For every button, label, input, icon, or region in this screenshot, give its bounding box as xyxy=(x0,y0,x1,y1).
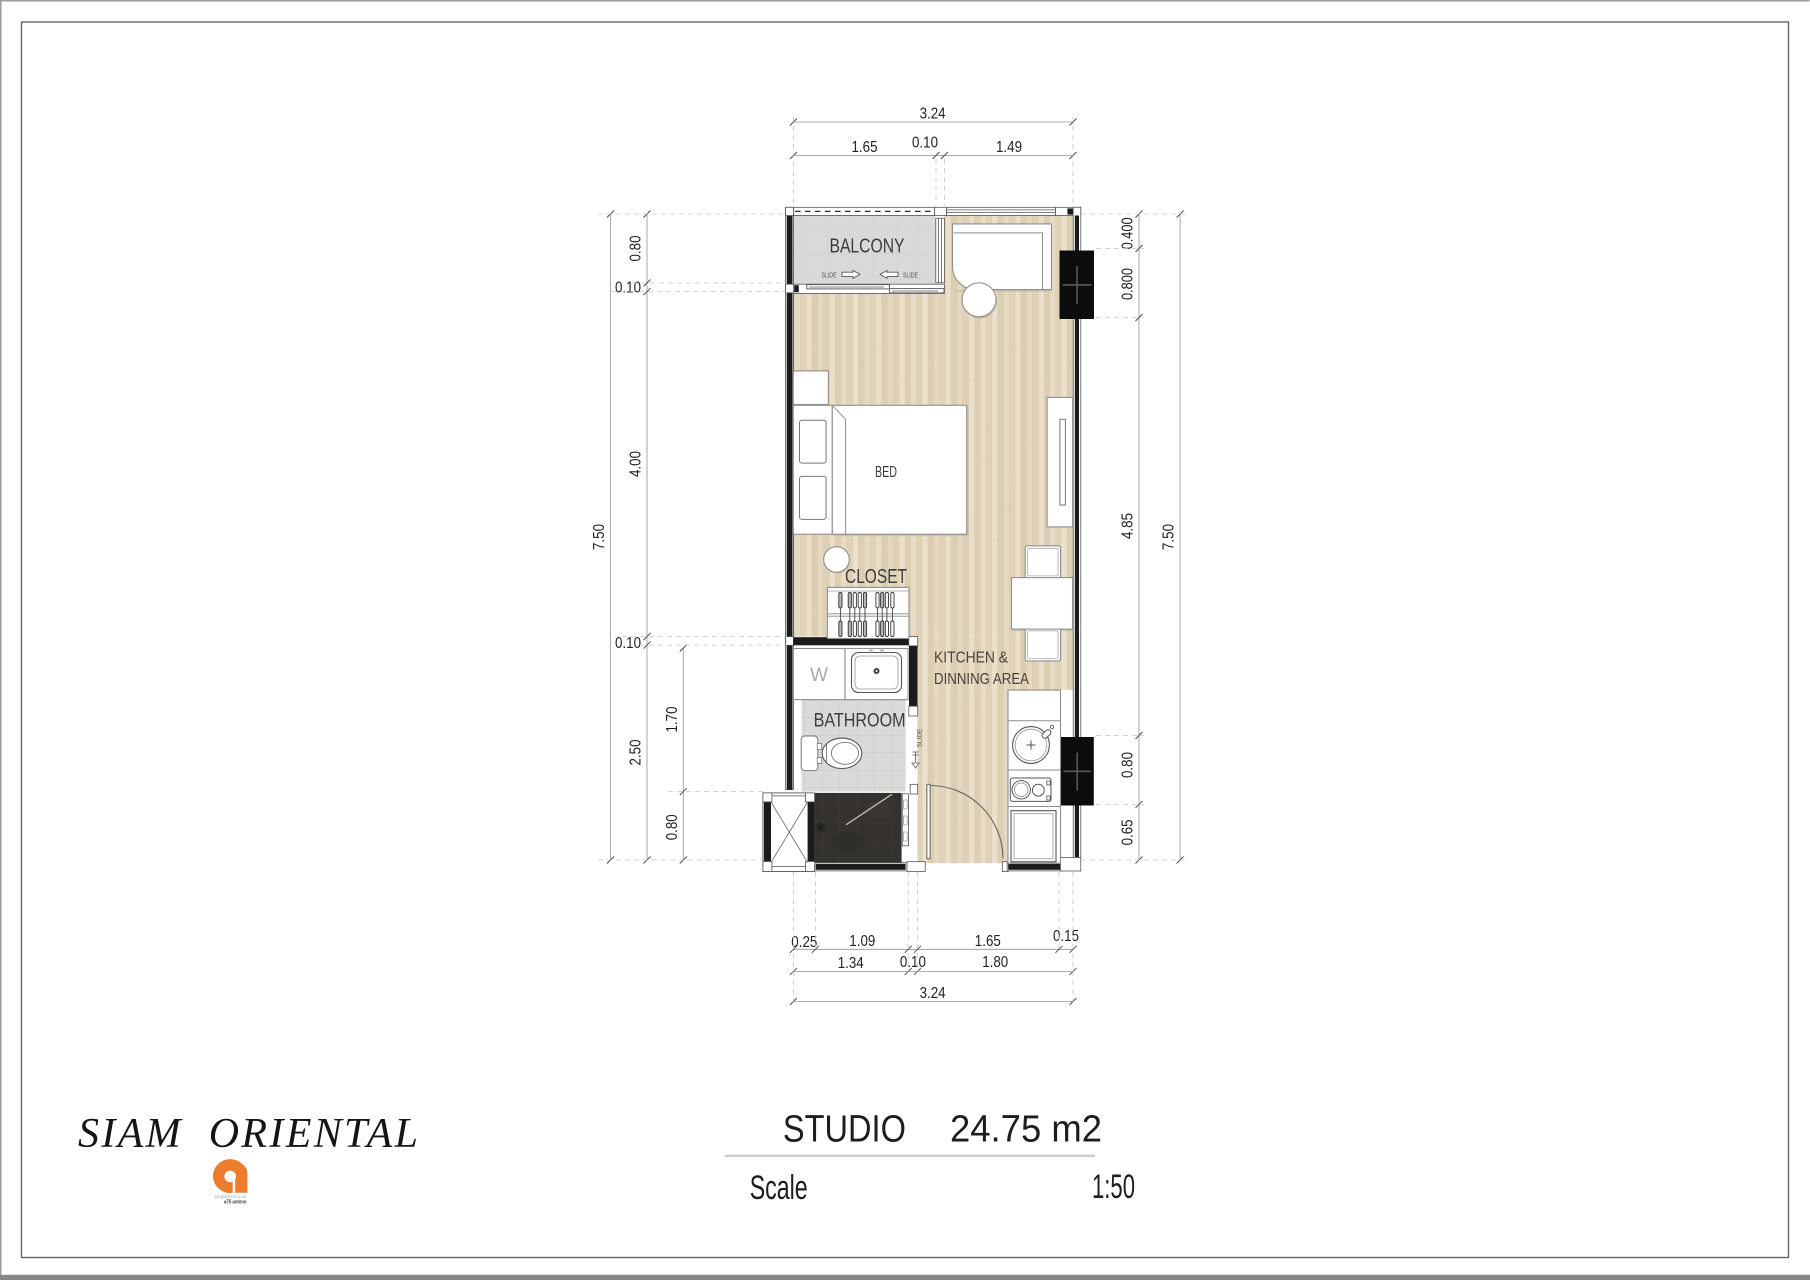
svg-text:0.10: 0.10 xyxy=(900,954,926,971)
svg-text:4.85: 4.85 xyxy=(1120,513,1137,539)
svg-text:0.400: 0.400 xyxy=(1120,217,1137,249)
svg-text:Scale: Scale xyxy=(750,1169,808,1207)
svg-text:1.70: 1.70 xyxy=(664,706,681,732)
svg-text:BED: BED xyxy=(875,464,897,481)
svg-text:1.65: 1.65 xyxy=(975,933,1001,950)
svg-text:KITCHEN &: KITCHEN & xyxy=(934,650,1009,667)
svg-text:BATHROOM: BATHROOM xyxy=(814,711,906,732)
svg-text:SLIDE: SLIDE xyxy=(903,271,918,280)
svg-text:STUDIO: STUDIO xyxy=(783,1109,906,1151)
svg-text:24.75 m2: 24.75 m2 xyxy=(950,1109,1102,1151)
svg-text:4.00: 4.00 xyxy=(628,451,645,477)
svg-text:1.34: 1.34 xyxy=(838,955,864,972)
svg-text:0.65: 0.65 xyxy=(1120,819,1137,845)
svg-text:3.24: 3.24 xyxy=(920,985,946,1002)
svg-text:0.800: 0.800 xyxy=(1120,268,1137,300)
svg-text:0.10: 0.10 xyxy=(615,280,641,297)
svg-text:3.24: 3.24 xyxy=(920,106,946,123)
svg-text:W: W xyxy=(810,665,828,686)
svg-text:1.80: 1.80 xyxy=(982,954,1008,971)
svg-text:0.80: 0.80 xyxy=(1120,752,1137,778)
svg-text:1.65: 1.65 xyxy=(852,139,878,156)
svg-text:CLOSET: CLOSET xyxy=(845,566,907,588)
svg-text:7.50: 7.50 xyxy=(591,524,608,550)
svg-text:0.10: 0.10 xyxy=(912,135,938,152)
svg-text:0.10: 0.10 xyxy=(615,635,641,652)
svg-text:0.80: 0.80 xyxy=(664,814,681,840)
svg-text:SLIDE: SLIDE xyxy=(822,271,837,280)
svg-text:1.49: 1.49 xyxy=(996,139,1022,156)
svg-text:ACE ARCHITECT Co.,Ltd.: ACE ARCHITECT Co.,Ltd. xyxy=(215,1194,247,1199)
svg-text:2.50: 2.50 xyxy=(628,739,645,765)
svg-text:1.09: 1.09 xyxy=(849,933,875,950)
svg-text:0.25: 0.25 xyxy=(791,934,817,951)
svg-text:SIAM ORIENTAL: SIAM ORIENTAL xyxy=(78,1111,424,1157)
svg-text:a75 antenn: a75 antenn xyxy=(224,1200,247,1206)
svg-text:BALCONY: BALCONY xyxy=(830,236,905,258)
svg-text:DINNING AREA: DINNING AREA xyxy=(934,671,1030,688)
svg-text:0.15: 0.15 xyxy=(1053,928,1079,945)
svg-text:SLIDE: SLIDE xyxy=(917,728,924,747)
svg-text:7.50: 7.50 xyxy=(1161,524,1178,550)
svg-text:0.80: 0.80 xyxy=(628,235,645,261)
svg-text:1:50: 1:50 xyxy=(1092,1168,1135,1206)
